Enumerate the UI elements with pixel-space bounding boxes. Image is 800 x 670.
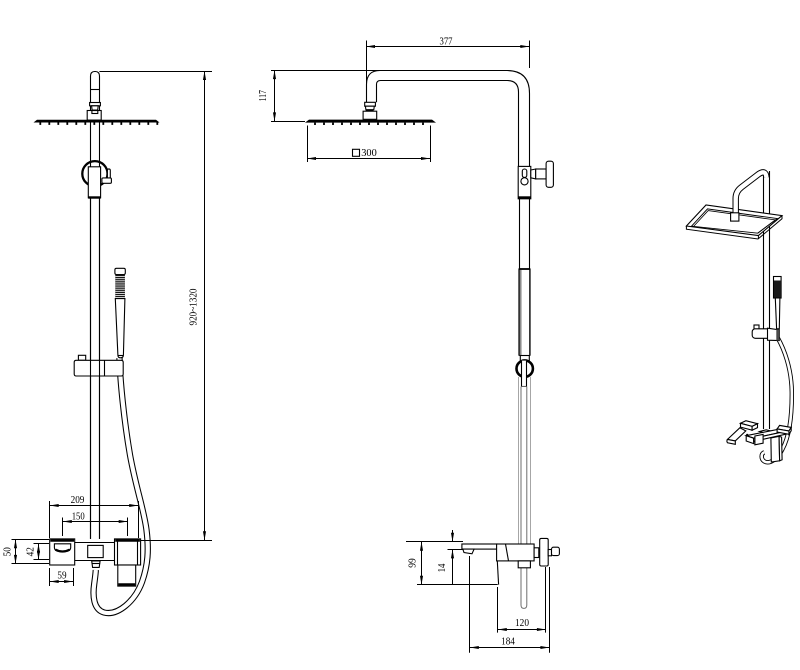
svg-text:14: 14 bbox=[437, 564, 448, 573]
svg-text:300: 300 bbox=[361, 148, 377, 159]
svg-text:184: 184 bbox=[501, 637, 515, 648]
svg-text:120: 120 bbox=[515, 618, 529, 629]
svg-text:50: 50 bbox=[3, 547, 14, 556]
svg-text:150: 150 bbox=[72, 511, 85, 522]
svg-text:117: 117 bbox=[258, 90, 269, 102]
svg-text:42: 42 bbox=[25, 547, 36, 556]
svg-text:377: 377 bbox=[440, 37, 453, 48]
svg-text:99: 99 bbox=[408, 558, 419, 568]
svg-text:59: 59 bbox=[57, 570, 66, 581]
svg-text:920~1320: 920~1320 bbox=[189, 289, 200, 326]
svg-text:209: 209 bbox=[71, 495, 85, 506]
